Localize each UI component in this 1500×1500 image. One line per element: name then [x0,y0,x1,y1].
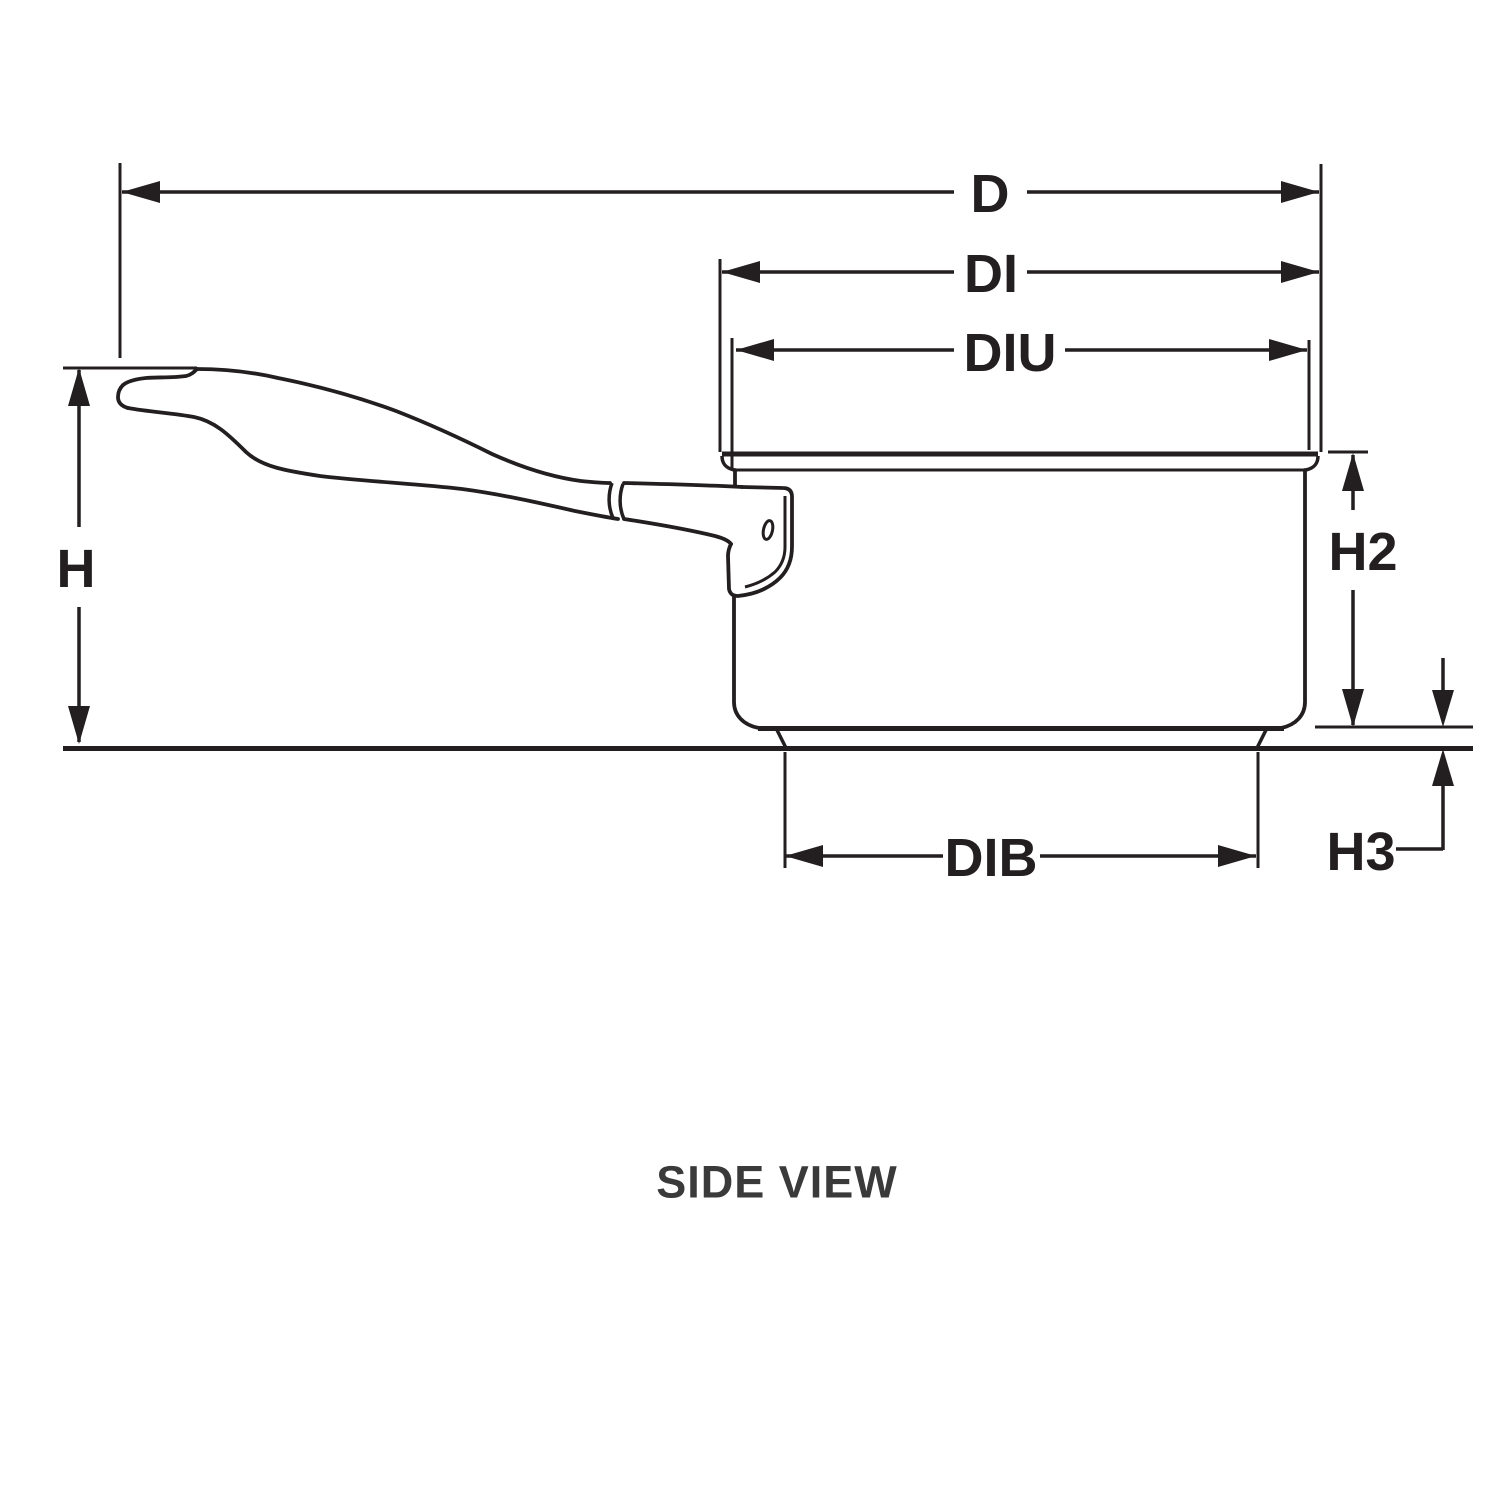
pan-right-wall [1281,470,1305,728]
dimension-h3 [1396,658,1454,850]
h3-arrowhead-down [1432,690,1454,727]
handle-bracket-inner-line [745,496,785,587]
handle-rivet [762,520,775,540]
handle-bracket-plate [728,487,792,596]
di-arrowhead-right [1281,261,1319,283]
h-label: H [57,539,96,599]
dimension-labels: D DI DIU H H2 H3 DIB [28,152,1408,907]
dib-arrowhead-left [785,845,823,867]
diu-arrowhead-left [736,339,774,361]
pan-body [722,454,1318,748]
handle-neck-bottom [624,519,731,544]
pan-left-wall-lower [734,597,759,728]
dib-label: DIB [945,828,1038,888]
saucepan-dimension-diagram: D DI DIU H H2 H3 DIB SIDE VIEW [0,0,1500,1500]
handle-bottom-edge [128,408,618,519]
pan-base-right-slant [1257,730,1266,748]
h2-arrowhead-top [1342,453,1364,491]
h-arrowhead-top [68,368,90,406]
pan-base-left-slant [777,730,786,748]
pan-handle [118,369,792,596]
handle-neck-top [624,483,742,487]
h3-label: H3 [1326,822,1395,882]
handle-top-edge [197,369,610,483]
h2-label: H2 [1328,522,1397,582]
h2-arrowhead-bottom [1342,689,1364,727]
diu-arrowhead-right [1269,339,1307,361]
pan-rim-right-curve [1306,456,1318,470]
di-label: DI [964,244,1018,304]
handle-ferrule [609,483,624,519]
d-arrowhead-left [122,181,160,203]
handle-tip [118,369,197,408]
h-arrowhead-bottom [68,706,90,744]
technical-drawing-canvas: D DI DIU H H2 H3 DIB SIDE VIEW [0,0,1500,1500]
view-caption: SIDE VIEW [656,1157,898,1208]
di-arrowhead-left [722,261,760,283]
diu-label: DIU [964,323,1057,383]
h3-arrowhead-up [1432,749,1454,786]
d-label: D [971,164,1010,224]
d-arrowhead-right [1281,181,1319,203]
dib-arrowhead-right [1218,845,1256,867]
